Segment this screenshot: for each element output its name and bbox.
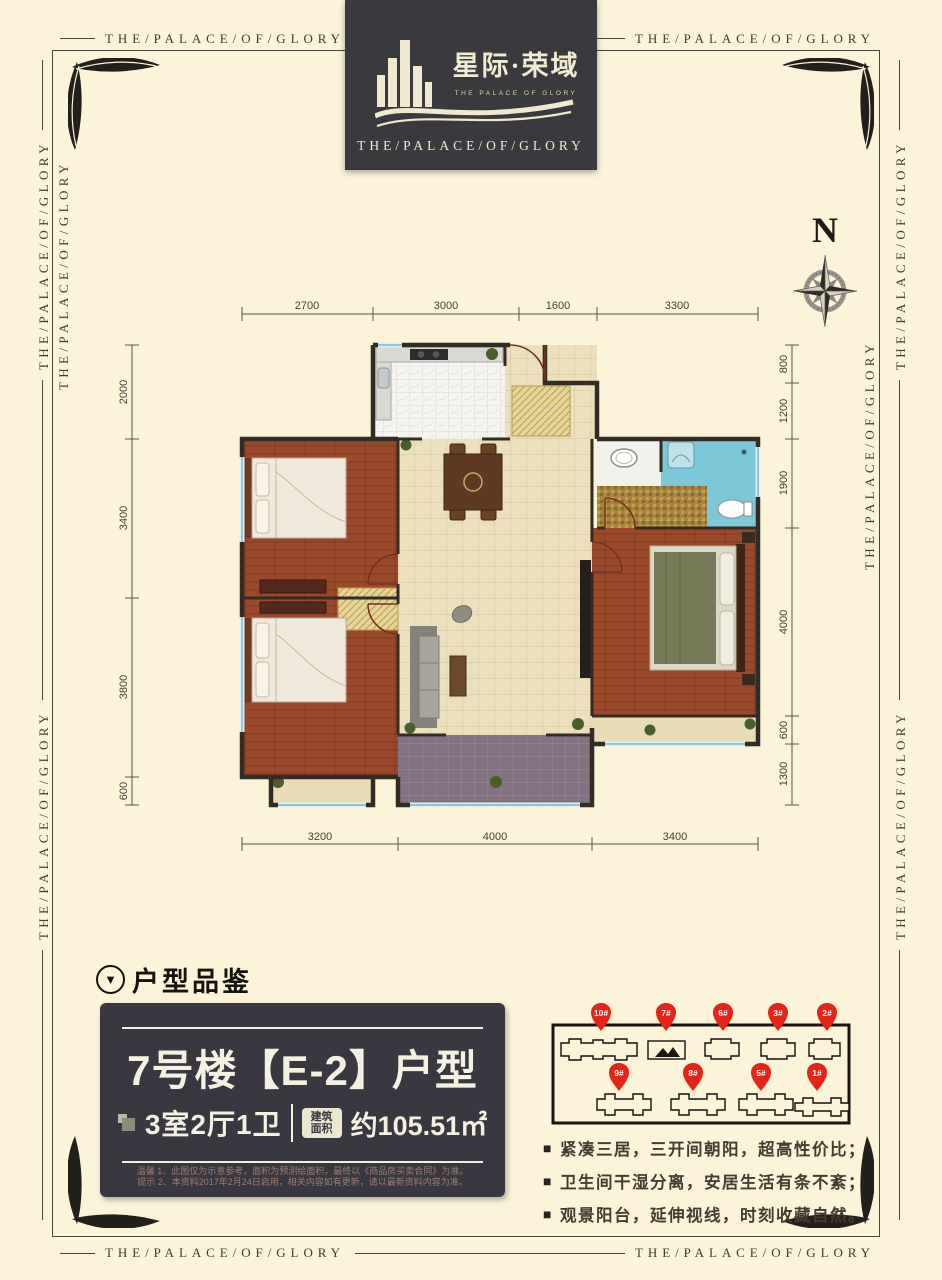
selling-point-3: ■ 观景阳台，延伸视线，时刻收藏自然。 [543,1202,873,1226]
dim-top-4: 3300 [665,300,689,312]
dresser-bedroom2 [260,602,326,613]
compass-north-label: N [783,210,867,250]
section-heading: ▼ 户型品鉴 [96,960,252,999]
svg-text:7#: 7# [661,1008,671,1018]
brand-name-cn: 星际·荣域 [441,44,591,83]
unit-title: 7号楼【E-2】户型 [100,1037,505,1098]
brand-motto: THE/PALACE/OF/GLORY [345,138,597,154]
selling-point-2: ■ 卫生间干湿分离，安居生活有条不紊； [543,1169,873,1193]
svg-text:2#: 2# [822,1008,832,1018]
dim-top-2: 3000 [434,300,458,312]
border-motto-bottom-right: THE/PALACE/OF/GLORY [625,1245,885,1261]
dim-right-6: 1300 [778,762,790,786]
building-10 [561,1039,637,1060]
dim-bottom-1: 3200 [308,831,332,843]
border-motto-inner-left: THE/PALACE/OF/GLORY [56,150,72,400]
dim-right-2: 1200 [778,399,790,423]
square-bullet-icon: ■ [543,1206,553,1222]
dim-left-3: 3800 [118,675,130,699]
area-badge: 建筑 面积 [302,1108,342,1138]
svg-text:10#: 10# [594,1008,608,1018]
selling-points: ■ 紧凑三居，三开间朝阳，超高性价比； ■ 卫生间干湿分离，安居生活有条不紊； … [543,1136,873,1235]
border-motto-bottom-left: THE/PALACE/OF/GLORY [95,1245,355,1261]
border-motto-left-2: THE/PALACE/OF/GLORY [36,700,52,950]
spec-divider [291,1104,293,1142]
dim-right-5: 600 [778,721,790,739]
svg-text:6#: 6# [718,1008,728,1018]
border-motto-right-1: THE/PALACE/OF/GLORY [893,130,909,380]
master-bay-floor [592,716,758,744]
dim-right-4: 4000 [778,610,790,634]
entry-mat [512,386,570,436]
unit-spec-row: 3室2厅1卫 建筑 面积 约105.51㎡ [100,1103,505,1143]
building-outlines [561,1039,849,1116]
dim-bottom-3: 3400 [663,831,687,843]
coffee-table [450,656,466,696]
card-top-rule [122,1027,483,1029]
brand-logo-panel: 星际·荣域 THE PALACE OF GLORY THE/PALACE/OF/… [345,0,597,170]
brand-name-en: THE PALACE OF GLORY [441,90,591,97]
area-value: 约105.51㎡ [351,1104,488,1143]
kitchen-sink [378,368,389,388]
svg-text:8#: 8# [688,1068,698,1078]
border-motto-left-1: THE/PALACE/OF/GLORY [36,130,52,380]
dim-right-1: 800 [778,355,790,373]
tv-console [580,560,591,678]
building-1 [795,1098,849,1116]
border-motto-top-left: THE/PALACE/OF/GLORY [95,31,355,47]
feather-flourish-top-right [778,58,874,154]
rooms-icon [118,1114,136,1132]
disclaimer: 温馨 1、此图仅为示意参考，面积为预测绘面积，最终以《商品房买卖合同》为准。 提… [110,1166,495,1188]
dim-right-3: 1900 [778,471,790,495]
unit-info-card: 7号楼【E-2】户型 3室2厅1卫 建筑 面积 约105.51㎡ 温馨 1、此图… [100,1003,505,1197]
shower-head [742,450,747,455]
poster-page: THE/PALACE/OF/GLORY THE/PALACE/OF/GLORY … [0,0,942,1280]
dim-left-1: 2000 [118,380,130,404]
bath-mosaic-floor [597,486,707,528]
card-bottom-rule [122,1161,483,1163]
chevron-down-circle-icon: ▼ [96,965,125,994]
square-bullet-icon: ■ [543,1140,553,1156]
svg-text:1#: 1# [812,1068,822,1078]
border-motto-top-right: THE/PALACE/OF/GLORY [625,31,885,47]
dining-table [444,454,502,510]
rooms-text: 3室2厅1卫 [145,1103,282,1143]
svg-text:3#: 3# [773,1008,783,1018]
building-2 [809,1039,840,1059]
building-bars-icon [377,40,432,107]
dresser-bedroom1 [260,580,326,593]
dim-top-3: 1600 [546,300,570,312]
selling-point-1: ■ 紧凑三居，三开间朝阳，超高性价比； [543,1136,873,1160]
building-3 [761,1039,795,1059]
svg-text:5#: 5# [756,1068,766,1078]
disclaimer-line-2: 提示 2、本资料2017年2月24日启用，相关内容如有更新，请以最新资料内容为准… [110,1177,495,1188]
master-bed [650,532,755,685]
svg-text:9#: 9# [614,1068,624,1078]
section-title: 户型品鉴 [132,960,252,999]
floorplan-drawing: 2700 3000 1600 3300 3200 4000 3400 2000 … [110,262,810,872]
dim-left-4: 600 [118,782,130,800]
disclaimer-line-1: 温馨 1、此图仅为示意参考，面积为预测绘面积，最终以《商品房买卖合同》为准。 [110,1166,495,1177]
site-location-map: 10# 7# 6# 3# 2# 9# 8# 5# 1# [545,995,860,1133]
plant-kitchen [486,348,498,360]
border-motto-inner-right: THE/PALACE/OF/GLORY [862,330,878,580]
dim-left-2: 3400 [118,506,130,530]
building-5 [739,1094,793,1115]
dim-bottom-2: 4000 [483,831,507,843]
building-6 [705,1039,739,1059]
dim-top-1: 2700 [295,300,319,312]
square-bullet-icon: ■ [543,1173,553,1189]
building-9 [597,1094,651,1115]
basin [611,449,637,467]
bedroom2-bay-floor [271,777,373,805]
toilet [718,500,746,518]
feather-flourish-top-left [68,58,164,154]
balcony-floor [398,735,592,805]
stove [410,349,448,360]
dining-set [444,444,502,520]
building-8 [671,1094,725,1115]
border-motto-right-2: THE/PALACE/OF/GLORY [893,700,909,950]
